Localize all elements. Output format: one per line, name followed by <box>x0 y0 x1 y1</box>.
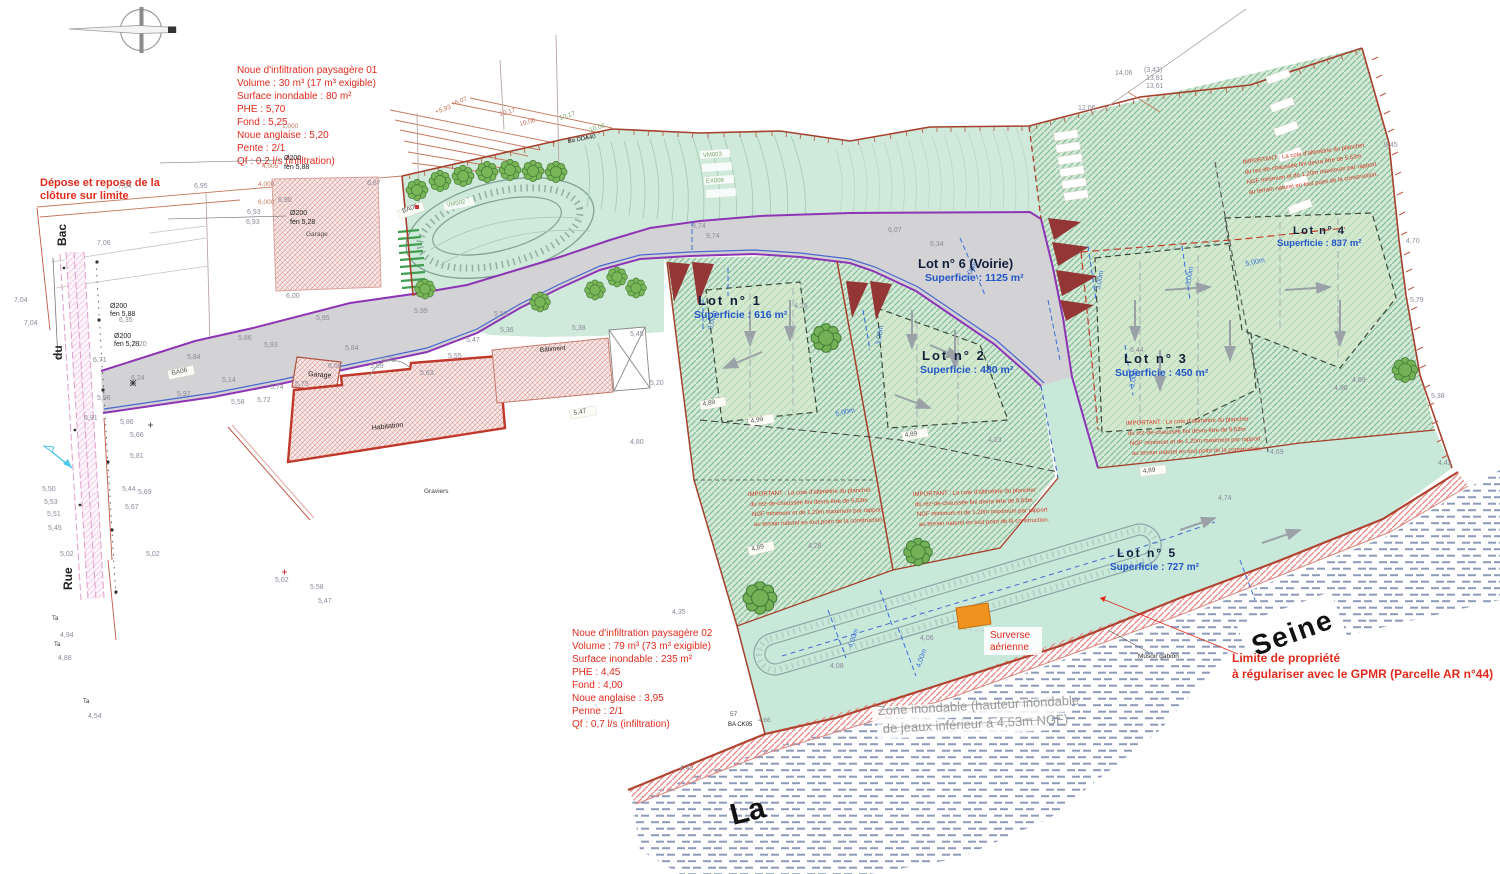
svg-text:5,86: 5,86 <box>120 419 134 426</box>
svg-text:5,75: 5,75 <box>295 381 309 388</box>
svg-text:Lot n° 5: Lot n° 5 <box>1117 546 1177 560</box>
svg-text:Superficie : 616 m²: Superficie : 616 m² <box>694 309 788 321</box>
svg-text:5,63: 5,63 <box>420 370 434 377</box>
svg-text:6,00: 6,00 <box>286 293 300 300</box>
svg-text:Superficie : 837 m²: Superficie : 837 m² <box>1277 238 1361 249</box>
svg-text:7,04: 7,04 <box>24 320 38 327</box>
svg-text:Ø200: Ø200 <box>284 155 301 162</box>
svg-text:Garage: Garage <box>306 231 328 238</box>
svg-text:5,36: 5,36 <box>500 327 514 334</box>
svg-text:5,84: 5,84 <box>187 354 201 361</box>
svg-text:7,04: 7,04 <box>118 183 132 190</box>
svg-text:Ø200: Ø200 <box>110 303 127 310</box>
svg-text:5,96: 5,96 <box>97 395 111 402</box>
svg-text:Rue: Rue <box>61 567 75 590</box>
svg-text:BA CK05: BA CK05 <box>728 722 753 728</box>
svg-text:8,74: 8,74 <box>692 223 706 230</box>
svg-text:Ø200: Ø200 <box>290 210 307 217</box>
svg-text:Volume : 79 m³ (73 m³ exigible: Volume : 79 m³ (73 m³ exigible) <box>572 641 711 652</box>
svg-text:7,06: 7,06 <box>97 240 111 247</box>
svg-text:Superficie : 727 m²: Superficie : 727 m² <box>1110 562 1200 573</box>
svg-text:4,98: 4,98 <box>1334 385 1348 392</box>
svg-text:Ta: Ta <box>83 699 90 705</box>
svg-text:Limite de propriété: Limite de propriété <box>1232 651 1340 665</box>
svg-text:Dépose et repose de la: Dépose et repose de la <box>40 177 161 189</box>
svg-text:Musoir gabion: Musoir gabion <box>1138 653 1179 660</box>
svg-text:Noue d'infiltration paysagère: Noue d'infiltration paysagère 01 <box>237 65 378 76</box>
svg-text:4,43: 4,43 <box>1438 460 1452 467</box>
svg-text:4,80: 4,80 <box>630 439 644 446</box>
svg-text:6,71: 6,71 <box>93 357 107 364</box>
svg-text:5,02: 5,02 <box>60 551 74 558</box>
svg-text:7,04: 7,04 <box>14 297 28 304</box>
svg-text:6,20: 6,20 <box>133 341 147 348</box>
svg-text:5,99: 5,99 <box>414 308 428 315</box>
svg-text:5,51: 5,51 <box>47 511 61 518</box>
svg-text:9,45: 9,45 <box>1384 142 1398 149</box>
svg-text:du: du <box>51 345 65 360</box>
svg-text:5,38: 5,38 <box>1431 393 1445 400</box>
svg-text:4,70: 4,70 <box>1406 238 1420 245</box>
svg-text:5,79: 5,79 <box>1410 297 1424 304</box>
svg-text:4,66: 4,66 <box>758 717 771 724</box>
svg-text:5,74: 5,74 <box>270 384 284 391</box>
svg-text:6,93: 6,93 <box>247 209 261 216</box>
svg-text:4,88: 4,88 <box>58 655 72 662</box>
svg-text:à régulariser avec le GPMR (Pa: à régulariser avec le GPMR (Parcelle AR … <box>1232 667 1493 681</box>
svg-text:5,67: 5,67 <box>125 504 139 511</box>
svg-text:4,35: 4,35 <box>672 609 686 616</box>
svg-text:5,47: 5,47 <box>318 598 332 605</box>
svg-text:5,47: 5,47 <box>466 337 480 344</box>
svg-text:5,84: 5,84 <box>345 345 359 352</box>
svg-text:12,06: 12,06 <box>1078 105 1096 112</box>
svg-text:Ta: Ta <box>52 616 59 622</box>
svg-text:5,55: 5,55 <box>448 353 462 360</box>
svg-text:4,28: 4,28 <box>808 543 822 550</box>
svg-text:Surverse: Surverse <box>990 630 1030 641</box>
svg-text:4,69: 4,69 <box>1270 449 1284 456</box>
svg-text:4,08: 4,08 <box>830 663 844 670</box>
svg-text:Surface inondable : 80 m²: Surface inondable : 80 m² <box>237 91 352 102</box>
svg-text:PHE : 4,45: PHE : 4,45 <box>572 667 621 678</box>
svg-text:Pente : 2/1: Pente : 2/1 <box>237 143 286 154</box>
svg-text:13,61: 13,61 <box>1146 83 1164 90</box>
svg-text:5,93: 5,93 <box>264 342 278 349</box>
svg-text:4,28: 4,28 <box>794 303 808 310</box>
svg-text:(3,43): (3,43) <box>1144 67 1162 74</box>
svg-text:5,95: 5,95 <box>316 315 330 322</box>
svg-text:4,23: 4,23 <box>988 437 1002 444</box>
svg-text:5,81: 5,81 <box>130 453 144 460</box>
svg-text:6,95: 6,95 <box>194 183 208 190</box>
svg-text:Superficie : 1125 m²: Superficie : 1125 m² <box>925 272 1024 284</box>
svg-text:5,44: 5,44 <box>122 486 136 493</box>
svg-text:6,07: 6,07 <box>888 227 902 234</box>
svg-text:Lot n° 4: Lot n° 4 <box>1293 225 1345 237</box>
svg-text:fen 5,88: fen 5,88 <box>284 164 309 171</box>
svg-text:Fond : 5,25: Fond : 5,25 <box>237 117 288 128</box>
svg-text:aérienne: aérienne <box>990 642 1029 653</box>
svg-text:6,000: 6,000 <box>258 199 275 206</box>
svg-text:Lot n° 1: Lot n° 1 <box>698 293 762 308</box>
svg-text:5,02: 5,02 <box>275 577 289 584</box>
svg-text:5,50: 5,50 <box>42 486 56 493</box>
svg-text:Fond : 4,00: Fond : 4,00 <box>572 680 623 691</box>
svg-text:5,91: 5,91 <box>84 415 98 422</box>
svg-text:Lot n° 2: Lot n° 2 <box>922 348 986 363</box>
svg-text:PHE : 5,70: PHE : 5,70 <box>237 104 286 115</box>
svg-text:6,34: 6,34 <box>930 241 944 248</box>
svg-text:Noue anglaise : 3,95: Noue anglaise : 3,95 <box>572 693 664 704</box>
svg-text:5,69: 5,69 <box>138 489 152 496</box>
svg-text:14,06: 14,06 <box>1115 70 1133 77</box>
svg-text:57: 57 <box>730 711 738 718</box>
svg-text:6,93: 6,93 <box>246 219 260 226</box>
svg-text:13,81: 13,81 <box>1146 75 1164 82</box>
svg-text:5,53: 5,53 <box>44 499 58 506</box>
svg-text:5,53: 5,53 <box>494 311 508 318</box>
svg-text:6,87: 6,87 <box>367 180 381 187</box>
svg-text:Bac: Bac <box>55 224 69 246</box>
svg-text:5,59: 5,59 <box>370 363 384 370</box>
svg-text:Noue anglaise : 5,20: Noue anglaise : 5,20 <box>237 130 329 141</box>
svg-text:4,005: 4,005 <box>262 163 279 170</box>
svg-text:6,90: 6,90 <box>278 197 292 204</box>
svg-text:5,58: 5,58 <box>231 399 245 406</box>
svg-text:4,89: 4,89 <box>1142 467 1156 475</box>
svg-text:4,06: 4,06 <box>920 635 934 642</box>
svg-text:Superficie : 480 m²: Superficie : 480 m² <box>920 364 1014 376</box>
svg-text:5,86: 5,86 <box>238 335 252 342</box>
svg-text:Superficie : 450 m²: Superficie : 450 m² <box>1115 367 1209 379</box>
svg-text:6,35: 6,35 <box>119 317 133 324</box>
svg-text:fen 5,28: fen 5,28 <box>290 219 315 226</box>
svg-text:Lot n° 6 (Voirie): Lot n° 6 (Voirie) <box>918 256 1013 271</box>
svg-text:5,14: 5,14 <box>222 377 236 384</box>
svg-text:6,06: 6,06 <box>328 363 342 370</box>
svg-text:4,69: 4,69 <box>1352 377 1366 384</box>
svg-text:clôture sur limite: clôture sur limite <box>40 190 129 202</box>
svg-text:Volume : 30 m³ (17 m³ exigible: Volume : 30 m³ (17 m³ exigible) <box>237 78 376 89</box>
svg-text:Noue d'infiltration paysagère: Noue d'infiltration paysagère 02 <box>572 628 713 639</box>
svg-text:9,74: 9,74 <box>706 233 720 240</box>
svg-text:Surface inondable : 235 m²: Surface inondable : 235 m² <box>572 654 693 665</box>
svg-text:4,54: 4,54 <box>88 713 102 720</box>
svg-text:5,45: 5,45 <box>48 525 62 532</box>
svg-text:5,72: 5,72 <box>257 397 271 404</box>
svg-text:4,94: 4,94 <box>60 632 74 639</box>
svg-text:5,38: 5,38 <box>572 325 586 332</box>
svg-text:5,73: 5,73 <box>382 357 396 364</box>
svg-text:4,74: 4,74 <box>1218 495 1232 502</box>
svg-text:4,000: 4,000 <box>258 181 275 188</box>
svg-text:1,000: 1,000 <box>282 123 299 130</box>
svg-text:5,20: 5,20 <box>650 380 664 387</box>
svg-text:5,02: 5,02 <box>146 551 160 558</box>
svg-text:4,42: 4,42 <box>680 765 694 772</box>
svg-text:6,44: 6,44 <box>1130 347 1144 354</box>
svg-text:Ø200: Ø200 <box>114 333 131 340</box>
svg-text:Ta: Ta <box>54 642 61 648</box>
svg-text:Penne : 2/1: Penne : 2/1 <box>572 706 624 717</box>
svg-text:5,66: 5,66 <box>130 432 144 439</box>
svg-text:5,97: 5,97 <box>177 391 191 398</box>
svg-text:Graviers: Graviers <box>424 488 449 495</box>
svg-text:5,45: 5,45 <box>630 331 644 338</box>
svg-text:Qf : 0,7 l/s (infiltration): Qf : 0,7 l/s (infiltration) <box>572 719 670 730</box>
svg-text:5,58: 5,58 <box>310 584 324 591</box>
